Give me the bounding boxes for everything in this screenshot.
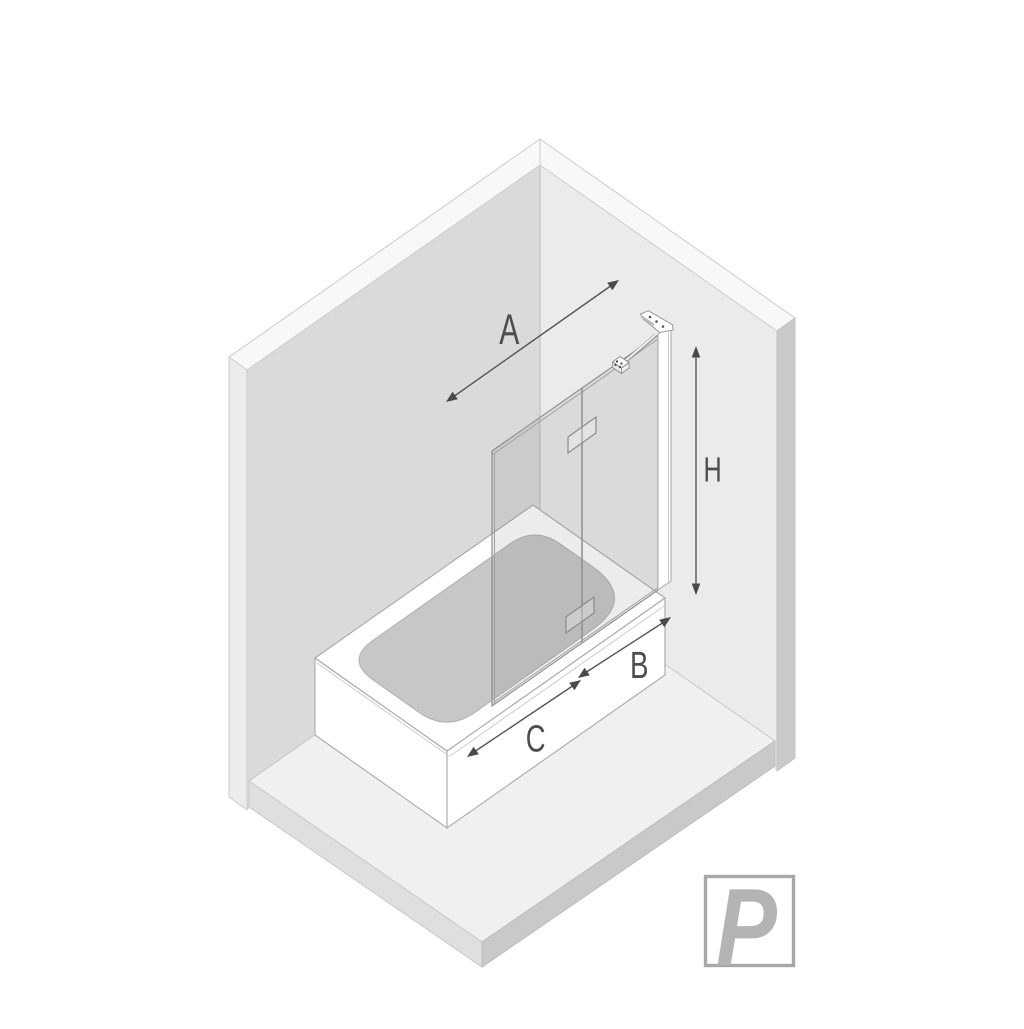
svg-text:C: C <box>526 718 546 760</box>
svg-text:A: A <box>499 306 519 354</box>
svg-text:P: P <box>716 866 777 989</box>
svg-text:H: H <box>703 451 721 490</box>
svg-text:B: B <box>630 645 649 687</box>
